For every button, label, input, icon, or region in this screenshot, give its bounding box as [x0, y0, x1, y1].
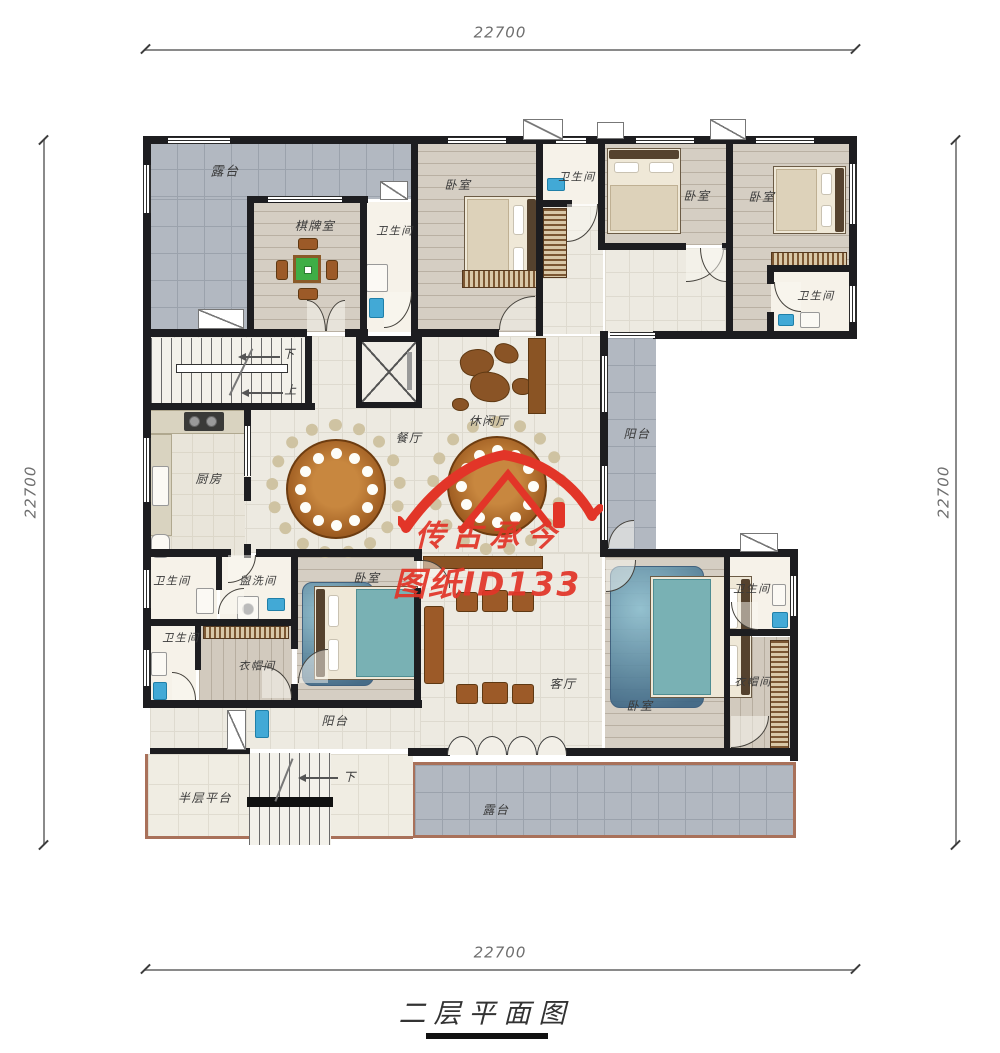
watermark-line1: 传古承今: [415, 522, 563, 552]
label-stairs-lower-down: 下: [343, 771, 357, 783]
wardrobe-icon: [203, 626, 289, 639]
label-bedroom-left: 卧室: [353, 572, 380, 584]
terrace-bottom-area: [412, 762, 796, 838]
bed-icon: [607, 148, 681, 234]
sink-icon: [800, 312, 820, 328]
label-bath-a: 卫生间: [153, 576, 191, 587]
toilet-icon: [196, 588, 214, 614]
label-bath-tm: 卫生间: [558, 172, 596, 183]
title-underline: [426, 1033, 548, 1039]
elevator-icon: [356, 336, 422, 408]
label-kitchen: 厨房: [195, 473, 222, 485]
label-bedroom-t2: 卧室: [683, 190, 710, 202]
label-chess-room: 棋牌室: [295, 220, 336, 232]
wardrobe-icon: [770, 640, 789, 750]
label-lounge: 休闲厅: [469, 415, 510, 427]
label-cloak-a: 衣帽间: [238, 661, 276, 672]
toilet-icon: [778, 314, 794, 326]
page-title: 二层平面图: [399, 992, 574, 1031]
toilet-icon: [369, 298, 384, 318]
toilet-icon: [772, 612, 788, 628]
label-cloak-b: 衣帽间: [734, 677, 772, 688]
dim-bottom: 22700: [474, 946, 527, 961]
label-terrace-tl: 露台: [210, 166, 239, 179]
sink-icon: [267, 598, 285, 611]
label-half-platform: 半层平台: [178, 792, 232, 804]
label-bedroom-t3: 卧室: [748, 191, 775, 203]
label-balcony-right: 阳台: [623, 428, 650, 440]
label-bath-b: 卫生间: [162, 633, 200, 644]
label-stairs-down: 下: [282, 348, 296, 360]
sofa-icon: [424, 606, 444, 684]
dim-top: 22700: [474, 26, 527, 41]
label-bath-r: 卫生间: [733, 584, 771, 595]
ac-unit-icon: [255, 710, 269, 738]
label-bath-tl: 卫生间: [376, 226, 414, 237]
wardrobe-icon: [543, 208, 567, 278]
mahjong-table-icon: [293, 255, 321, 283]
label-living: 客厅: [549, 678, 576, 690]
label-bath-tr: 卫生间: [797, 291, 835, 302]
wardrobe-icon: [462, 270, 538, 288]
sink-icon: [772, 584, 786, 606]
bed-icon: [773, 166, 846, 234]
label-washroom: 盥洗间: [239, 576, 277, 587]
floor-plan: 露台 棋牌室 卫生间 卧室 卫生间 卧室 卧室 卫生间 餐厅 休闲厅 阳台 厨房…: [0, 0, 1000, 1053]
bathtub-icon: [366, 264, 388, 292]
sink-icon: [152, 466, 169, 506]
label-balcony-bottom: 阳台: [321, 715, 348, 727]
label-stairs-up: 上: [284, 384, 298, 396]
dim-left: 22700: [24, 466, 39, 519]
cabinet-icon: [528, 338, 546, 414]
toilet-icon: [151, 652, 167, 676]
label-bedroom-right: 卧室: [626, 700, 653, 712]
watermark-line2: 图纸ID133: [393, 568, 582, 601]
dim-right: 22700: [937, 466, 952, 519]
label-terrace-bottom: 露台: [482, 804, 509, 816]
sink-icon: [153, 682, 167, 700]
label-bedroom-t1: 卧室: [444, 179, 471, 191]
